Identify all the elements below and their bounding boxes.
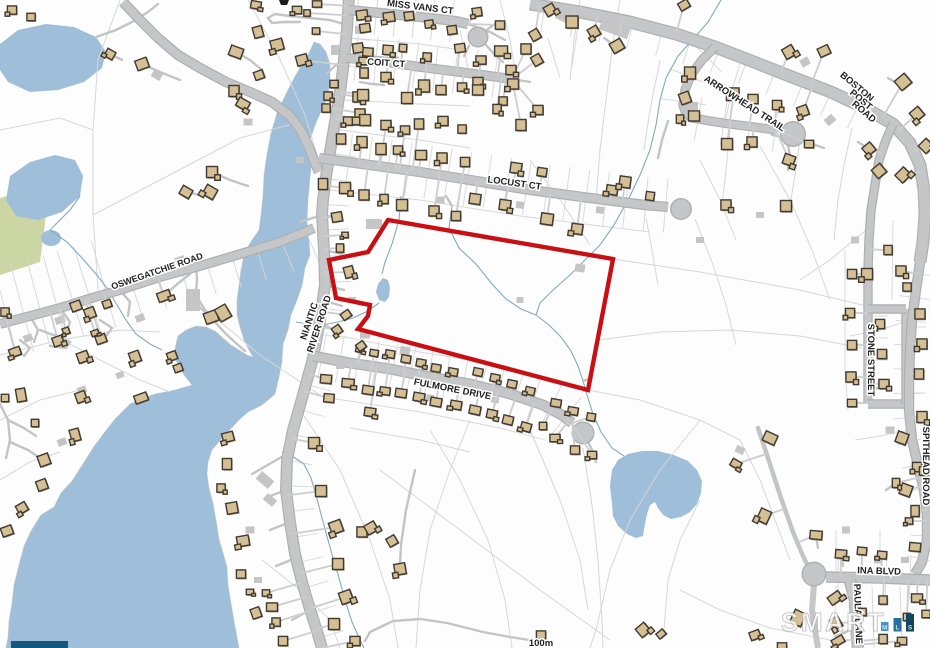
svg-text:S: S: [908, 625, 913, 632]
svg-text:M: M: [882, 625, 887, 632]
svg-text:SPITHEAD ROAD: SPITHEAD ROAD: [920, 427, 930, 506]
svg-text:L: L: [896, 625, 900, 632]
svg-text:SMART: SMART: [781, 607, 886, 637]
svg-text:100m: 100m: [529, 638, 553, 648]
svg-text:INA BLVD: INA BLVD: [857, 565, 901, 578]
svg-text:STONE STREET: STONE STREET: [865, 324, 876, 397]
